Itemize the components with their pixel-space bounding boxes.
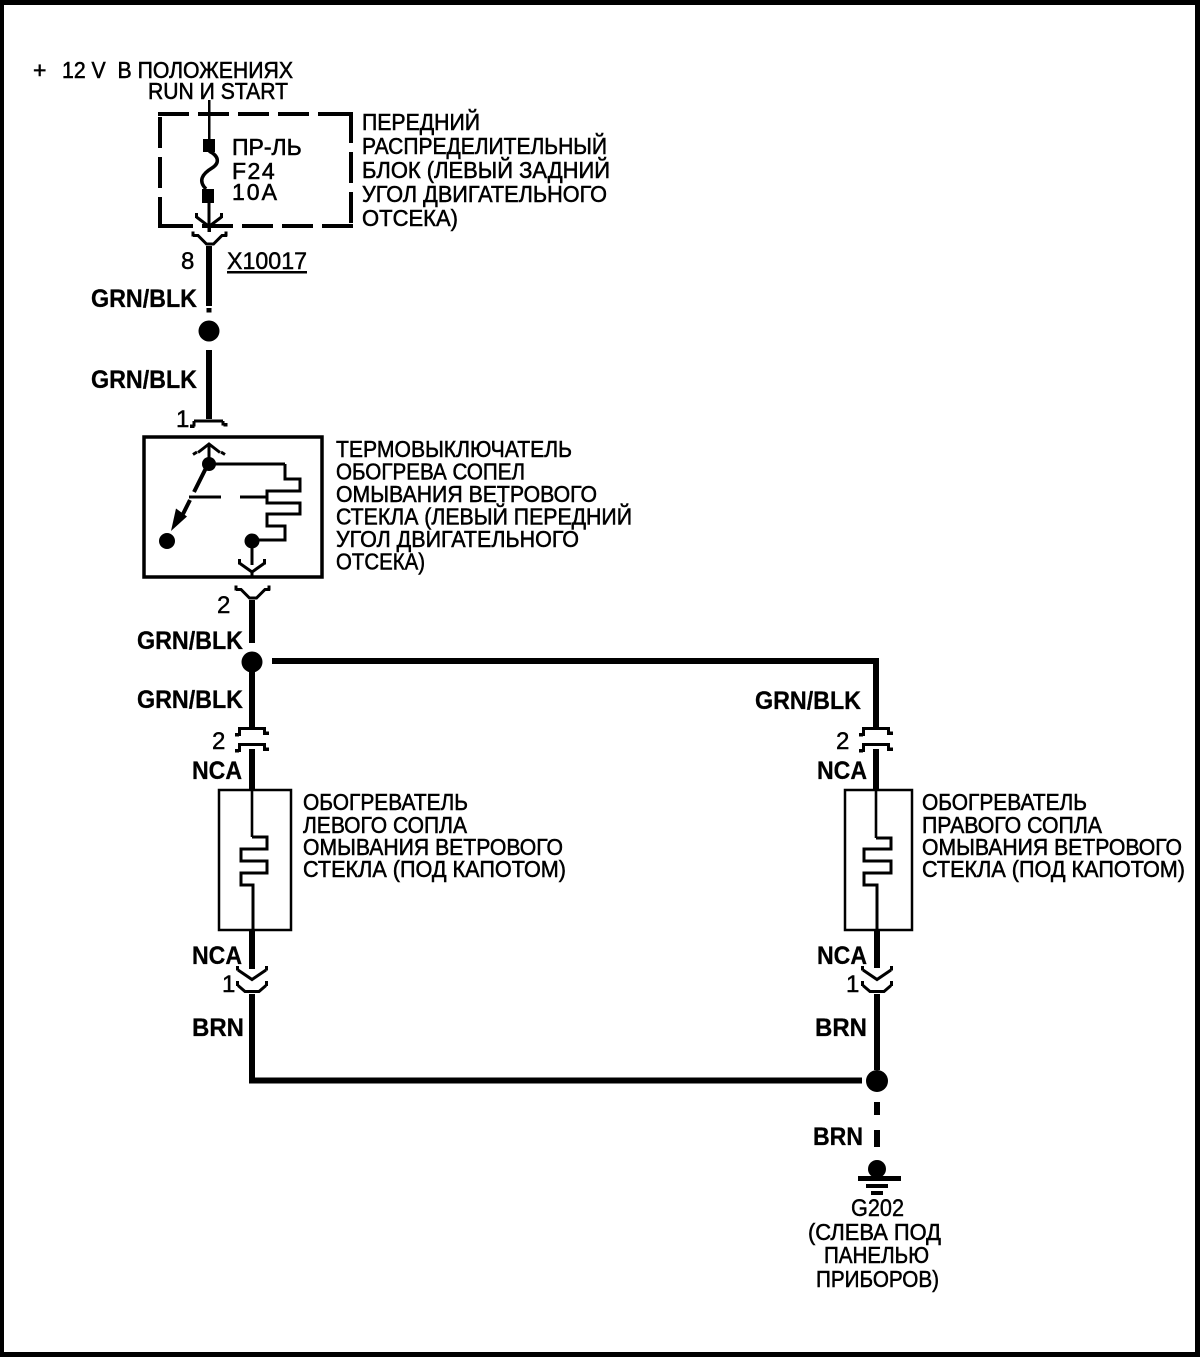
- svg-text:10A: 10A: [232, 179, 279, 205]
- svg-text:NCA: NCA: [817, 757, 867, 785]
- svg-text:8: 8: [181, 248, 194, 275]
- svg-text:СТЕКЛА (ПОД КАПОТОМ): СТЕКЛА (ПОД КАПОТОМ): [922, 856, 1185, 882]
- svg-text:ПРИБОРОВ): ПРИБОРОВ): [816, 1266, 939, 1292]
- svg-text:ПЕРЕДНИЙ: ПЕРЕДНИЙ: [362, 108, 480, 135]
- svg-text:BRN: BRN: [813, 1123, 863, 1151]
- svg-text:+: +: [33, 57, 46, 83]
- svg-text:БЛОК (ЛЕВЫЙ ЗАДНИЙ: БЛОК (ЛЕВЫЙ ЗАДНИЙ: [362, 156, 610, 183]
- svg-text:1: 1: [846, 971, 859, 998]
- svg-text:ОТСЕКА): ОТСЕКА): [362, 205, 458, 231]
- svg-text:2: 2: [212, 728, 225, 755]
- svg-text:BRN: BRN: [192, 1014, 244, 1042]
- svg-text:GRN/BLK: GRN/BLK: [755, 687, 861, 715]
- svg-text:GRN/BLK: GRN/BLK: [137, 627, 243, 655]
- svg-text:G202: G202: [851, 1195, 904, 1222]
- svg-text:BRN: BRN: [815, 1014, 867, 1042]
- svg-text:СТЕКЛА (ПОД КАПОТОМ): СТЕКЛА (ПОД КАПОТОМ): [303, 856, 566, 882]
- svg-text:RUN И START: RUN И START: [148, 78, 288, 104]
- svg-text:2: 2: [836, 728, 849, 755]
- svg-text:1: 1: [222, 971, 235, 998]
- svg-text:РАСПРЕДЕЛИТЕЛЬНЫЙ: РАСПРЕДЕЛИТЕЛЬНЫЙ: [362, 132, 607, 159]
- svg-text:ПР-ЛЬ: ПР-ЛЬ: [232, 134, 302, 160]
- svg-text:ПАНЕЛЬЮ: ПАНЕЛЬЮ: [824, 1242, 929, 1268]
- svg-text:NCA: NCA: [192, 942, 242, 970]
- svg-text:1: 1: [176, 406, 189, 433]
- svg-text:X10017: X10017: [227, 248, 307, 275]
- svg-text:ОТСЕКА): ОТСЕКА): [336, 549, 425, 575]
- svg-text:GRN/BLK: GRN/BLK: [91, 366, 197, 394]
- svg-text:2: 2: [217, 592, 230, 619]
- svg-text:NCA: NCA: [192, 757, 242, 785]
- svg-text:NCA: NCA: [817, 942, 867, 970]
- svg-text:GRN/BLK: GRN/BLK: [91, 285, 197, 313]
- svg-text:УГОЛ ДВИГАТЕЛЬНОГО: УГОЛ ДВИГАТЕЛЬНОГО: [362, 181, 607, 207]
- svg-text:GRN/BLK: GRN/BLK: [137, 686, 243, 714]
